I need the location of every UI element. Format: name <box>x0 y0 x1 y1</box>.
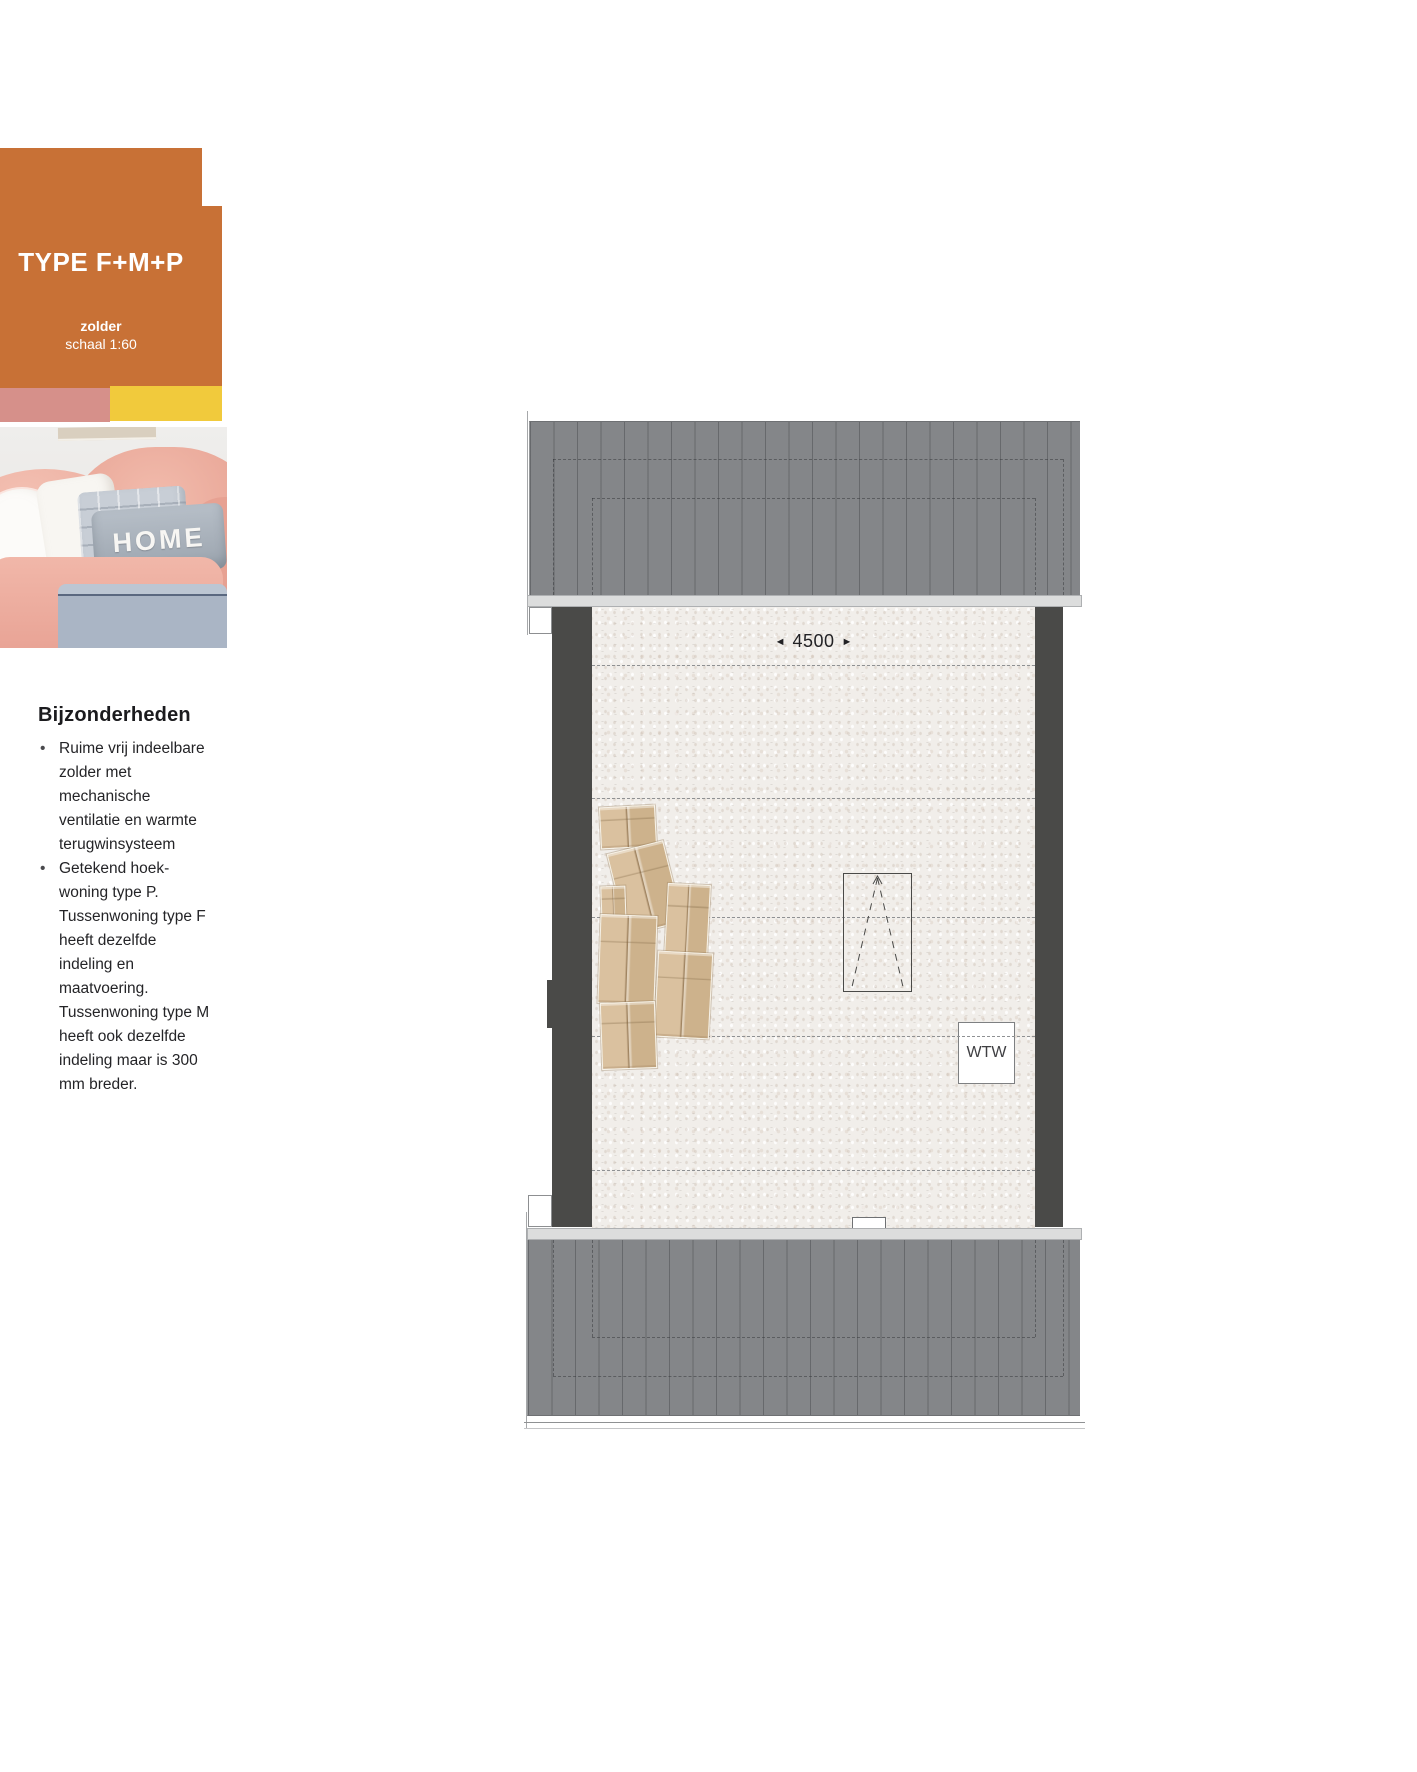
roof-hatch-top <box>529 421 1080 595</box>
roof-dash-line <box>553 1240 554 1376</box>
roof-dash-line <box>592 498 1035 499</box>
brochure-page: TYPE F+M+P zolder schaal 1:60 HOME Bijzo… <box>0 0 1417 1772</box>
cardboard-box <box>664 883 711 958</box>
wall-left-detail <box>547 980 552 1028</box>
roof-hatch-bottom <box>527 1240 1080 1416</box>
cardboard-box <box>600 1001 657 1070</box>
roof-dash-line <box>1035 498 1036 595</box>
roof-dash-line <box>1063 1240 1064 1376</box>
cardboard-box <box>597 914 657 1005</box>
exterior-box-top-left <box>529 607 552 634</box>
dimension-arrow-right: ► <box>835 636 860 648</box>
roof-dash-line <box>592 1337 1035 1338</box>
dimension-label: ◄4500► <box>592 631 1035 652</box>
roof-dash-line <box>1063 459 1064 595</box>
wall-right <box>1035 607 1063 1227</box>
gutter-bottom <box>527 1228 1082 1240</box>
roof-dash-line <box>553 459 1063 460</box>
eave-line <box>524 1428 1085 1429</box>
gutter-top <box>527 595 1082 607</box>
exterior-box-bottom-left <box>528 1195 552 1227</box>
cardboard-box <box>654 951 713 1040</box>
roof-dash-line <box>592 1240 593 1337</box>
roofline-dash <box>592 665 1035 666</box>
roof-dash-line <box>553 459 554 595</box>
dimension-arrow-left: ◄ <box>768 636 793 648</box>
roof-dash-line <box>592 498 593 595</box>
roof-dash-line <box>553 1376 1063 1377</box>
wall-left <box>552 607 592 1227</box>
roof-edge-line <box>526 1212 527 1429</box>
wtw-label: WTW <box>958 1044 1015 1062</box>
roofline-dash <box>592 1170 1035 1171</box>
floor-plan: ◄4500► WTW <box>0 0 1417 1772</box>
eave-line <box>524 1422 1085 1423</box>
stair-void <box>843 873 912 992</box>
roof-dash-line <box>1035 1240 1036 1337</box>
roofline-dash <box>592 798 1035 799</box>
